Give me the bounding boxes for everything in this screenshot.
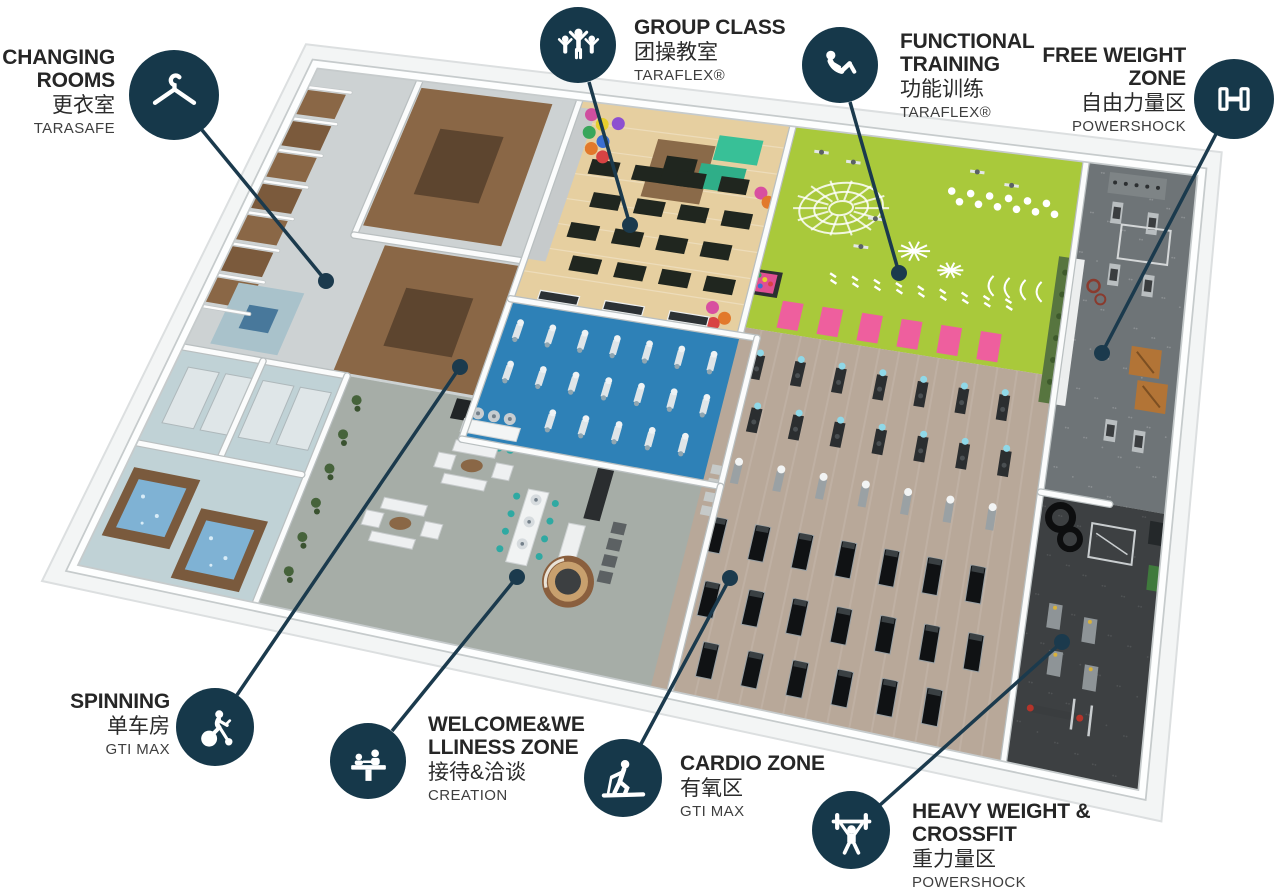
label-cardio-zone: CARDIO ZONE有氧区GTI MAX xyxy=(680,752,825,821)
label-spinning: SPINNING单车房GTI MAX xyxy=(70,690,170,759)
hanger-icon xyxy=(129,50,219,140)
zone-title-chinese: 自由力量区 xyxy=(1042,90,1186,118)
leader-dot-changing-rooms xyxy=(318,273,334,289)
zone-title-chinese: 单车房 xyxy=(70,713,170,741)
flooring-brand: TARAFLEX® xyxy=(900,104,1034,122)
zone-title: CARDIO ZONE xyxy=(680,752,825,775)
leader-dot-spinning xyxy=(452,359,468,375)
label-welcome-wellness: WELCOME&WELLINESS ZONE接待&洽谈CREATION xyxy=(428,713,585,805)
leader-dot-free-weight-zone xyxy=(1094,345,1110,361)
situp-icon xyxy=(802,27,878,103)
zone-title: FREE WEIGHT xyxy=(1042,44,1186,67)
zone-title-chinese: 团操教室 xyxy=(634,39,785,67)
zone-title-chinese: 重力量区 xyxy=(912,846,1090,874)
zone-title: CHANGING xyxy=(2,46,115,69)
flooring-brand: CREATION xyxy=(428,787,585,805)
label-free-weight-zone: FREE WEIGHTZONE自由力量区POWERSHOCK xyxy=(1042,44,1186,136)
label-group-class: GROUP CLASS团操教室TARAFLEX® xyxy=(634,16,785,85)
leader-dot-welcome-wellness xyxy=(509,569,525,585)
zone-title-chinese: 接待&洽谈 xyxy=(428,759,585,787)
flooring-brand: TARASAFE xyxy=(2,120,115,138)
spin-bike-icon xyxy=(176,688,254,766)
dumbbell-icon xyxy=(1194,59,1274,139)
flooring-brand: TARAFLEX® xyxy=(634,67,785,85)
treadmill-icon xyxy=(584,739,662,817)
zone-title: LLINESS ZONE xyxy=(428,736,585,759)
leader-dot-group-class xyxy=(622,217,638,233)
leader-dot-cardio-zone xyxy=(722,570,738,586)
reception-icon xyxy=(330,723,406,799)
label-functional-training: FUNCTIONALTRAINING功能训练TARAFLEX® xyxy=(900,30,1034,122)
zone-title: ZONE xyxy=(1042,67,1186,90)
flooring-brand: GTI MAX xyxy=(70,741,170,759)
zone-title-chinese: 功能训练 xyxy=(900,76,1034,104)
zone-title: TRAINING xyxy=(900,53,1034,76)
zone-title-chinese: 更衣室 xyxy=(2,92,115,120)
flooring-brand: GTI MAX xyxy=(680,803,825,821)
flooring-brand: POWERSHOCK xyxy=(912,874,1090,889)
zone-title: WELCOME&WE xyxy=(428,713,585,736)
zone-title: GROUP CLASS xyxy=(634,16,785,39)
group-class-icon xyxy=(540,7,616,83)
zone-title: SPINNING xyxy=(70,690,170,713)
leader-dot-heavy-weight-crossfit xyxy=(1054,634,1070,650)
zone-title: ROOMS xyxy=(2,69,115,92)
zone-title: HEAVY WEIGHT & xyxy=(912,800,1090,823)
barbell-icon xyxy=(812,791,890,869)
zone-title: CROSSFIT xyxy=(912,823,1090,846)
label-heavy-weight-crossfit: HEAVY WEIGHT &CROSSFIT重力量区POWERSHOCK xyxy=(912,800,1090,889)
zone-title-chinese: 有氧区 xyxy=(680,775,825,803)
gym-floorplan-infographic: CHANGINGROOMS更衣室TARASAFEGROUP CLASS团操教室T… xyxy=(0,0,1280,889)
zone-title: FUNCTIONAL xyxy=(900,30,1034,53)
flooring-brand: POWERSHOCK xyxy=(1042,118,1186,136)
leader-dot-functional-training xyxy=(891,265,907,281)
label-changing-rooms: CHANGINGROOMS更衣室TARASAFE xyxy=(2,46,115,138)
